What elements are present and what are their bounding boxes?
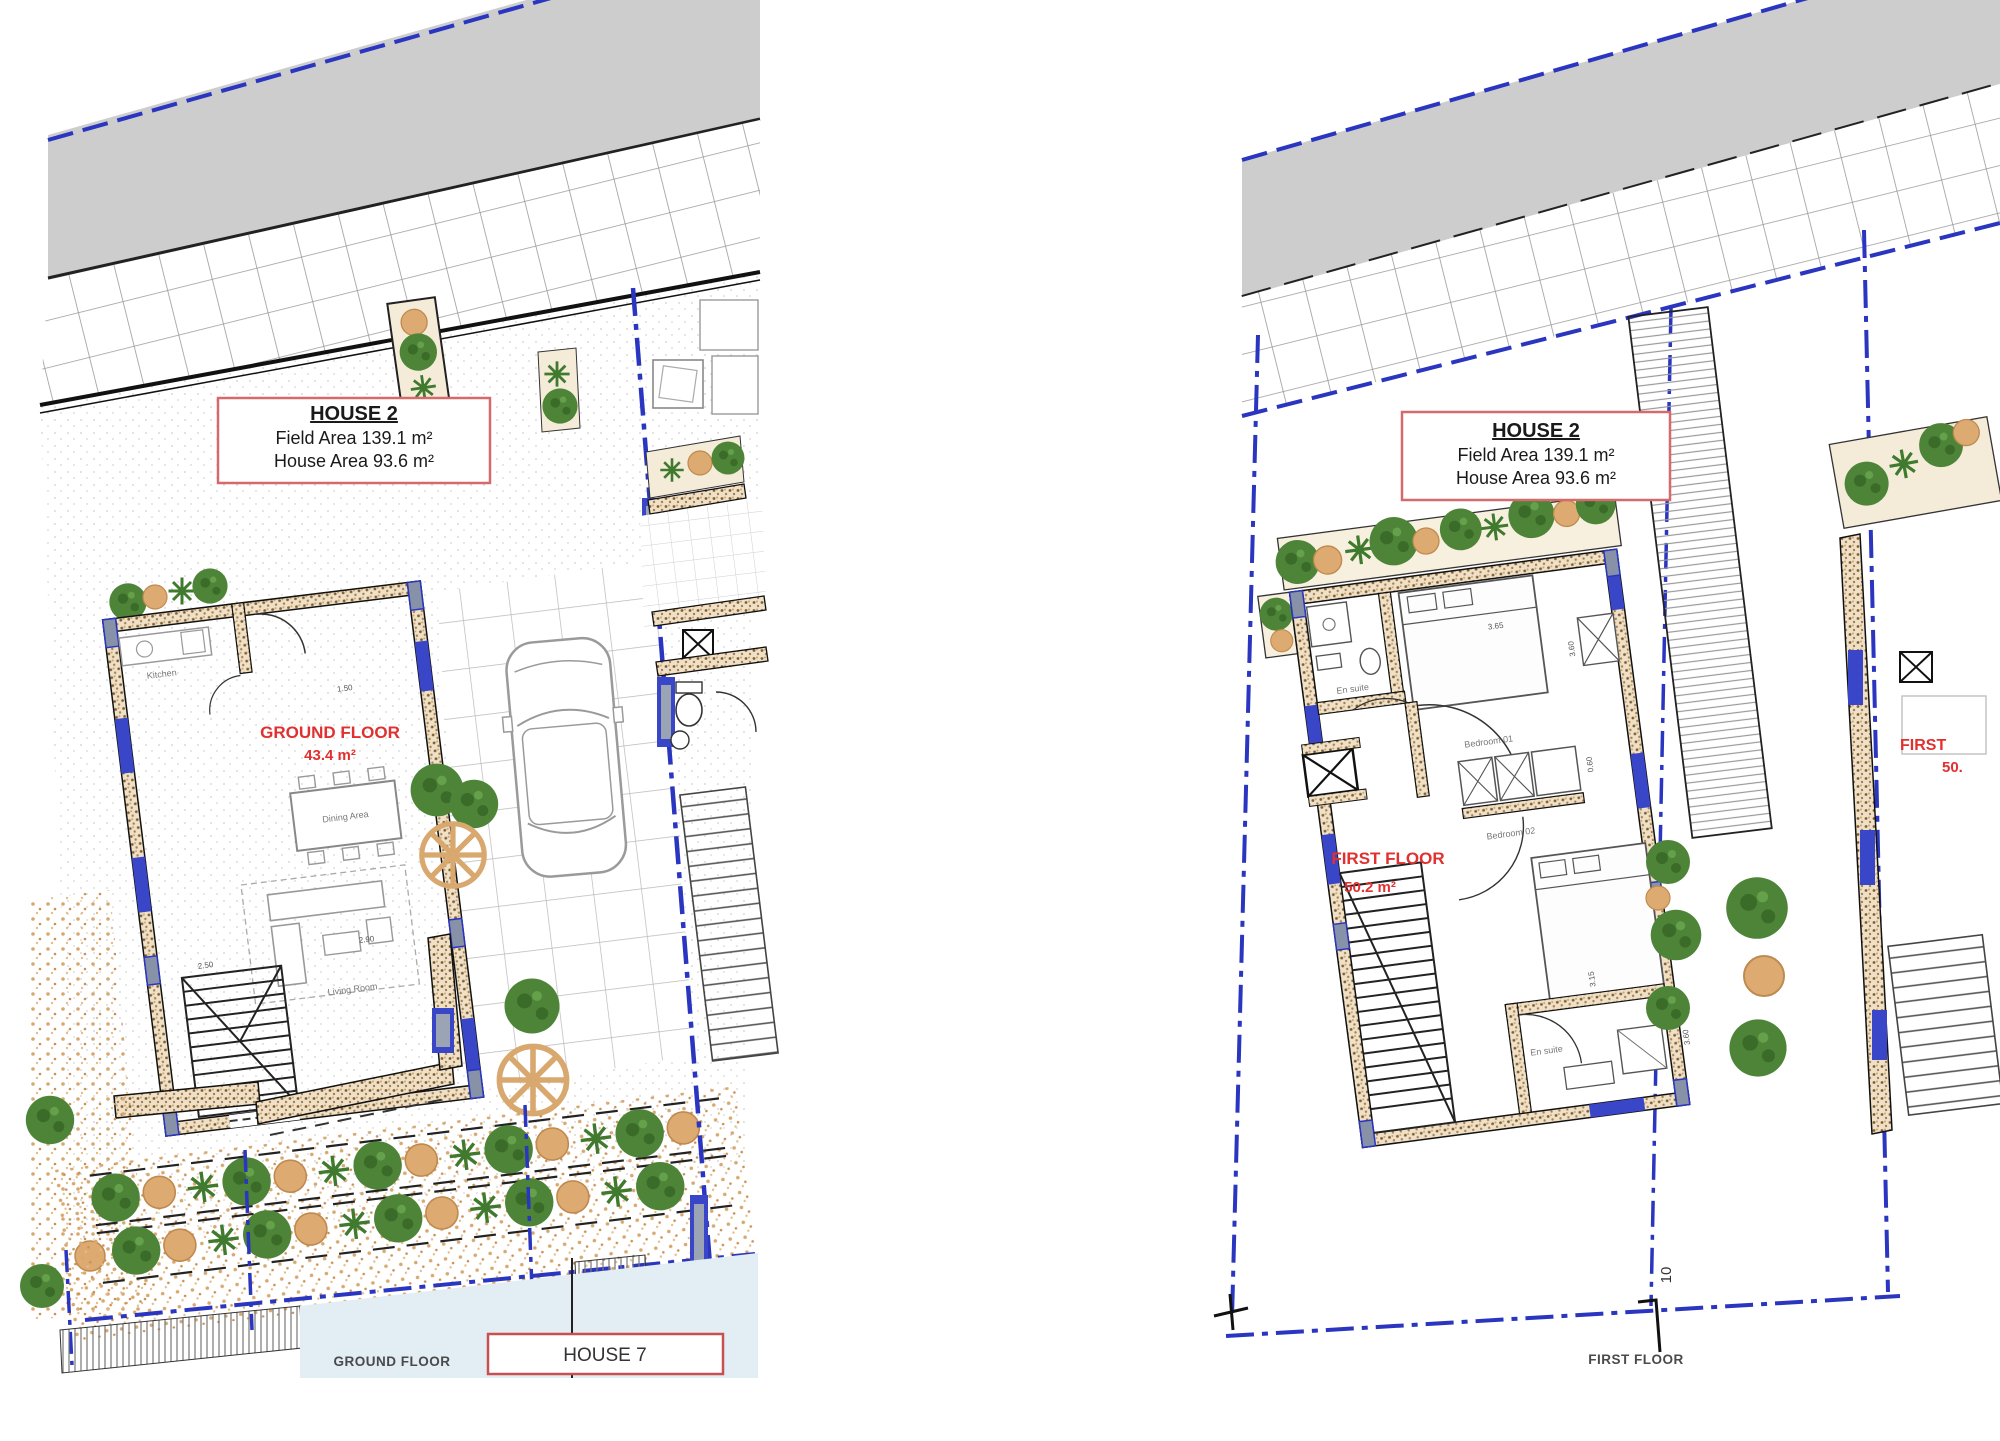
bed-01 [1399, 575, 1548, 710]
field-area: Field Area 139.1 m² [275, 428, 432, 448]
partition-wall [1405, 702, 1429, 798]
neighbor-house-label-box: HOUSE 7 [488, 1334, 723, 1374]
ensuite-top-label: En suite [1336, 682, 1370, 696]
toilet [1359, 647, 1382, 675]
house-label-box: HOUSE 2 Field Area 139.1 m² House Area 9… [1402, 412, 1670, 500]
floor-name-label: GROUND FLOOR [260, 723, 400, 742]
dim-label: 3.60 [1681, 1028, 1692, 1045]
tree [20, 1264, 64, 1308]
ensuite-bottom-label: En suite [1530, 1044, 1564, 1058]
bedroom-02-label: Bedroom 02 [1486, 825, 1536, 841]
side-trees [1646, 840, 1788, 1077]
neighbor-house-title: HOUSE 7 [563, 1345, 646, 1366]
door-arc [1519, 1008, 1582, 1071]
house-area: House Area 93.6 m² [274, 451, 434, 471]
survey-mark [1214, 1294, 1248, 1330]
vanity [1564, 1061, 1614, 1089]
coffee-table [323, 931, 361, 955]
partition-wall [1317, 691, 1406, 714]
tree [26, 1096, 74, 1144]
terrace-strip [1628, 307, 1771, 838]
neighbor-floor-label-2: 50. [1942, 759, 1963, 776]
neighbor-floor-label-1: FIRST [1900, 737, 1946, 754]
house-2-first-floor: En suite Bedroom 01 Bedroom 02 En suite … [1248, 480, 1699, 1151]
plan-caption: GROUND FLOOR [334, 1354, 451, 1369]
house-title: HOUSE 2 [1492, 420, 1580, 442]
shower [1307, 602, 1352, 647]
floor-area-label: 50.2 m² [1344, 879, 1396, 896]
ground-floor-plan: Kitchen Dining Area Living Room 1.50 2.9… [20, 0, 778, 1378]
house-label-box: HOUSE 2 Field Area 139.1 m² House Area 9… [218, 398, 490, 483]
house-area: House Area 93.6 m² [1456, 468, 1616, 488]
floor-plan-sheet: Kitchen Dining Area Living Room 1.50 2.9… [0, 0, 2000, 1441]
floor-area-label: 43.4 m² [304, 747, 356, 764]
plan-caption: FIRST FLOOR [1588, 1352, 1684, 1367]
survey-mark [1638, 1300, 1660, 1352]
field-area: Field Area 139.1 m² [1457, 445, 1614, 465]
bed-02 [1531, 843, 1665, 1007]
floor-plan-drawing: Kitchen Dining Area Living Room 1.50 2.9… [0, 0, 2000, 1441]
dim-label: 0.60 [1585, 756, 1596, 773]
house-title: HOUSE 2 [310, 403, 398, 425]
side-planter [538, 348, 580, 432]
floor-name-label: FIRST FLOOR [1331, 849, 1444, 868]
sink [1316, 653, 1342, 670]
partition-wall [1505, 1003, 1531, 1114]
lot-number: 10 [1658, 1267, 1675, 1284]
neighbor-house-fragment: FIRST 50. [1829, 415, 2000, 1134]
first-floor-plan: En suite Bedroom 01 Bedroom 02 En suite … [1214, 0, 2000, 1367]
dim-label: 3.60 [1566, 640, 1577, 657]
